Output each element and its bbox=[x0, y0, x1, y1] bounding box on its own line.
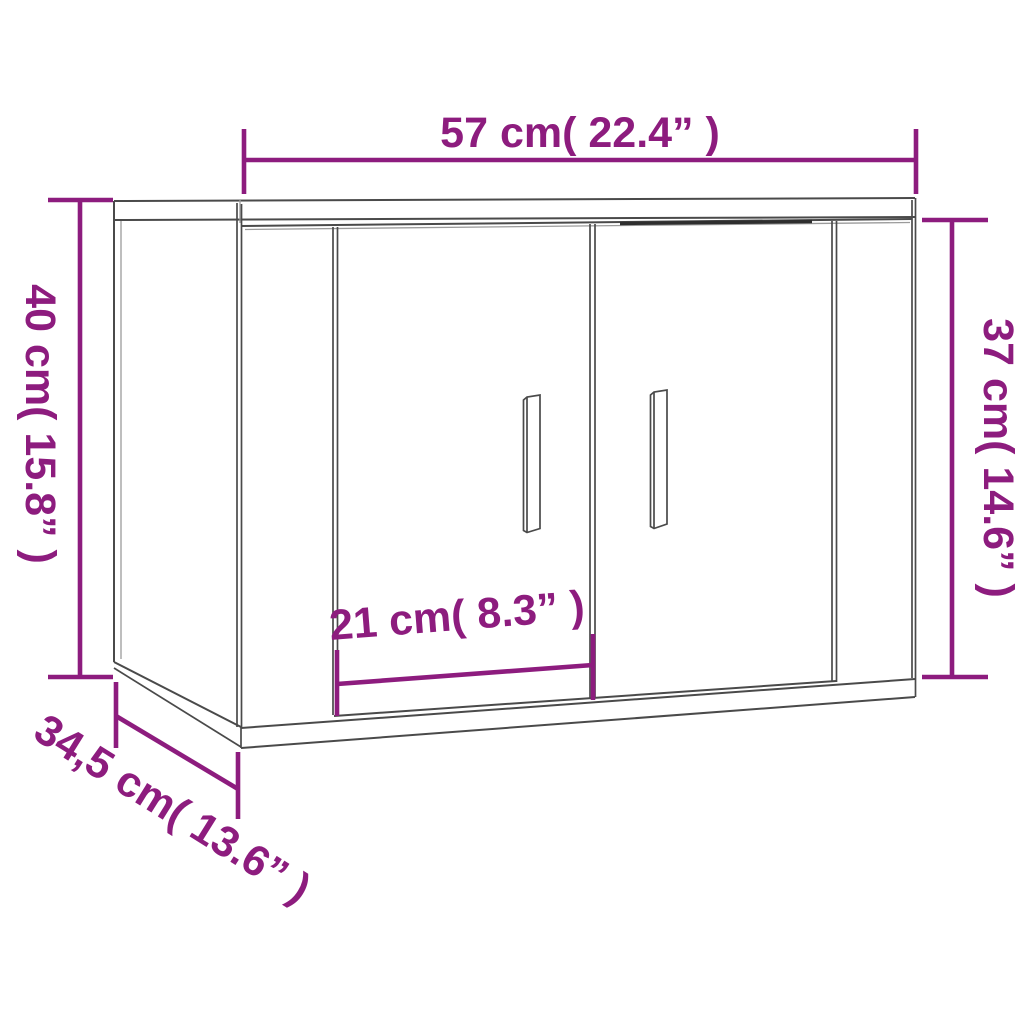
right-door-handle bbox=[651, 390, 668, 529]
left-side-panel bbox=[114, 201, 241, 747]
width-dimension-label: 57 cm( 22.4” ) bbox=[440, 109, 720, 157]
doors-top-shadow-edge bbox=[620, 222, 812, 224]
right-door bbox=[832, 221, 837, 682]
side-panel-bottom-edge bbox=[114, 662, 241, 727]
cabinet-dimension-drawing: 57 cm( 22.4” ) 40 cm( 15.8” ) 37 cm( 14.… bbox=[0, 0, 1024, 1024]
door-gap bbox=[590, 224, 595, 698]
dimension-diagram-page: 57 cm( 22.4” ) 40 cm( 15.8” ) 37 cm( 14.… bbox=[0, 0, 1024, 1024]
dimension-width: 57 cm( 22.4” ) bbox=[244, 109, 916, 194]
cabinet-drawing bbox=[114, 198, 916, 748]
left-handle-outline bbox=[524, 395, 541, 533]
top-slab-top-edge bbox=[114, 198, 915, 201]
plinth-bottom-edge bbox=[241, 697, 915, 748]
height-dimension-label: 40 cm( 15.8” ) bbox=[16, 284, 64, 564]
door-height-dimension-label: 37 cm( 14.6” ) bbox=[974, 318, 1022, 598]
right-handle-outline bbox=[651, 390, 668, 529]
depth-dimension-label: 34,5 cm( 13.6” ) bbox=[26, 705, 319, 913]
door-width-dimension-label: 21 cm( 8.3” ) bbox=[328, 582, 587, 650]
door-width-dimension-line bbox=[337, 665, 593, 684]
doors-top-inner-edge bbox=[245, 223, 910, 230]
dimension-depth: 34,5 cm( 13.6” ) bbox=[26, 682, 319, 913]
plinth-top-edge bbox=[241, 679, 915, 728]
left-door-handle bbox=[524, 395, 541, 533]
dimension-door-height: 37 cm( 14.6” ) bbox=[922, 220, 1022, 677]
dimension-door-width: 21 cm( 8.3” ) bbox=[328, 582, 593, 716]
doors-bottom-edge bbox=[334, 681, 836, 716]
bottom-plinth bbox=[241, 679, 915, 748]
dimension-height: 40 cm( 15.8” ) bbox=[16, 200, 113, 677]
plinth-side-edge bbox=[114, 668, 241, 747]
